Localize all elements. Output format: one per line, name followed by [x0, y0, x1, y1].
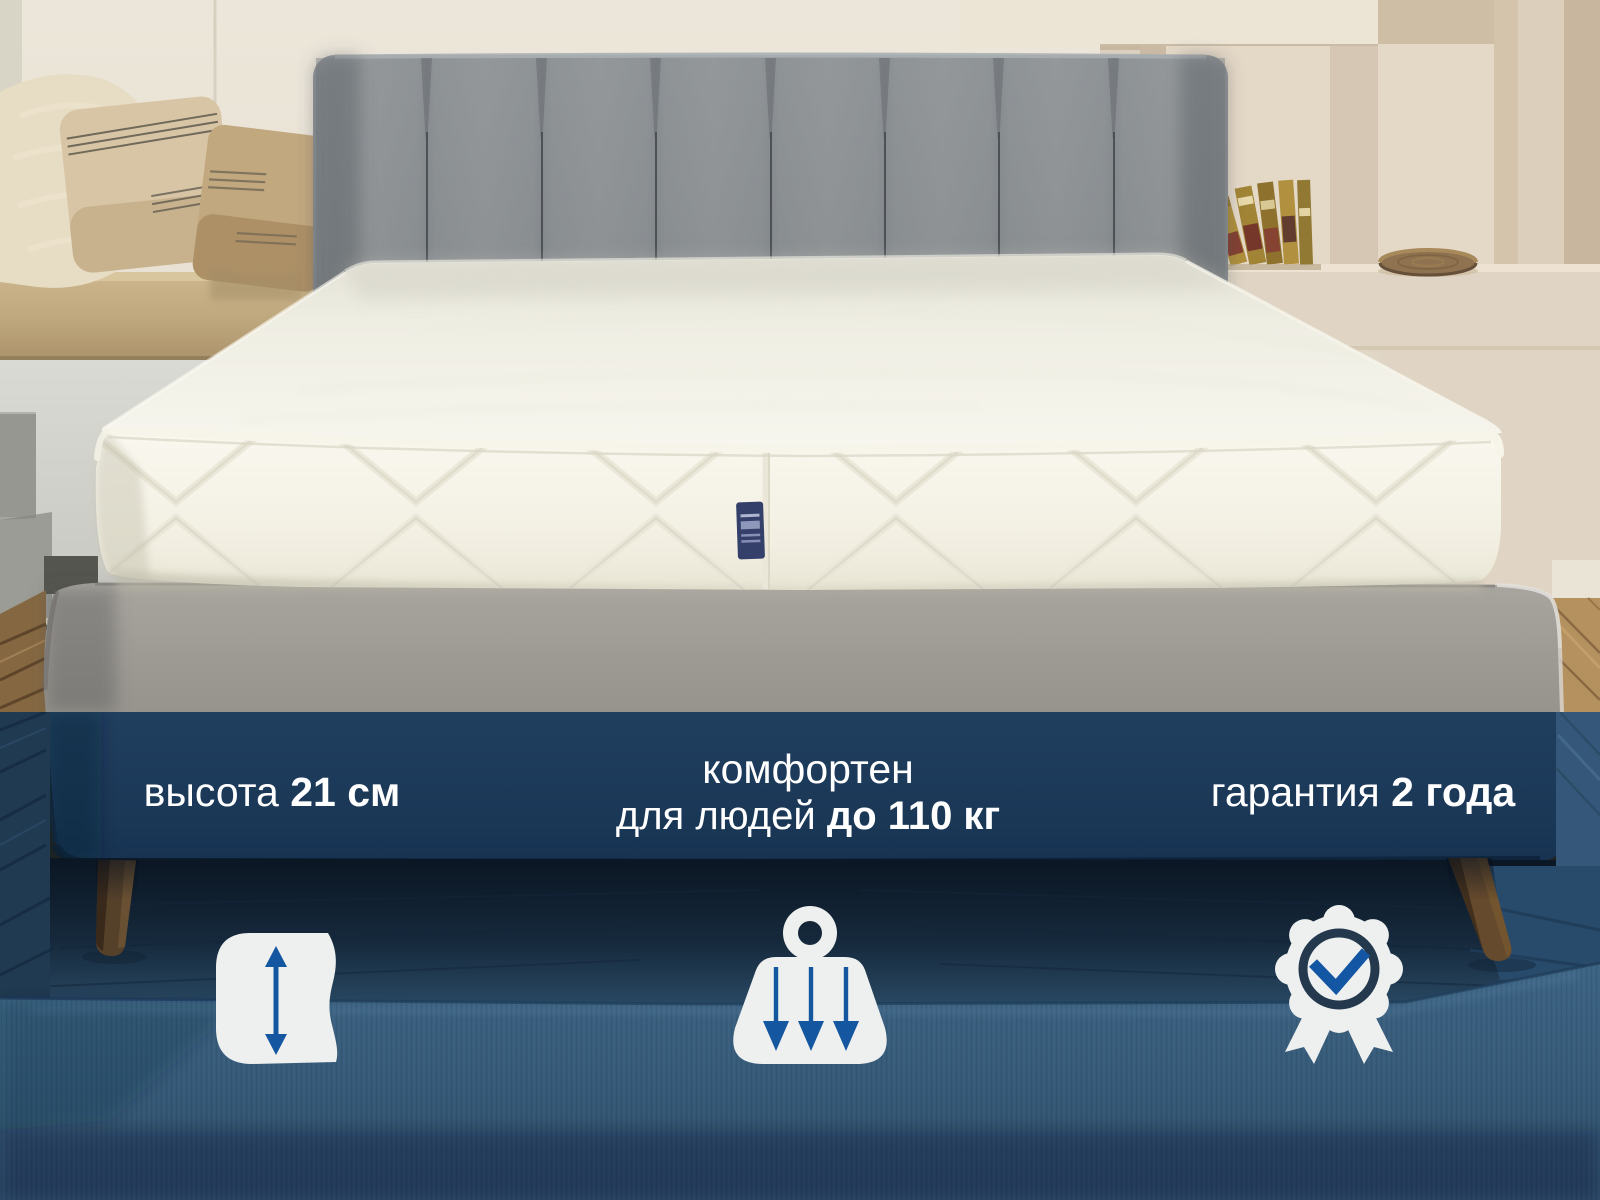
svg-text:гарантия 2 года: гарантия 2 года — [1211, 769, 1517, 815]
svg-text:комфортен: комфортен — [702, 746, 914, 792]
svg-text:для людей до 110 кг: для людей до 110 кг — [616, 794, 1000, 838]
svg-text:высота 21 см: высота 21 см — [144, 769, 401, 815]
